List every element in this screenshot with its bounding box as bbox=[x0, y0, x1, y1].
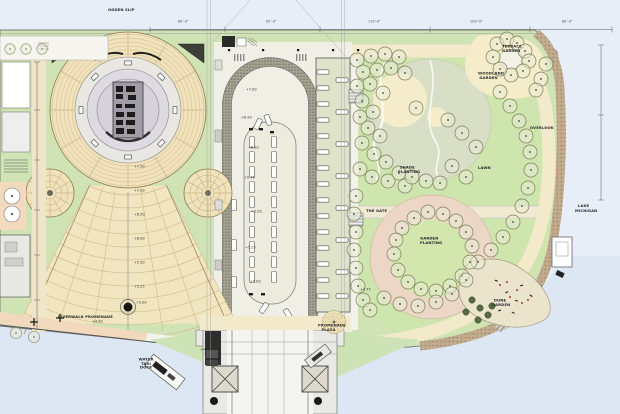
label-dune-garden: DUNE GARDEN bbox=[492, 299, 508, 307]
spot-elevation: +7.00 bbox=[134, 189, 145, 193]
site-plan-drawing bbox=[0, 0, 620, 414]
dimension-text: 80'-0" bbox=[562, 20, 573, 24]
spot-elevation: +4.75 bbox=[360, 288, 371, 292]
central-pavilion bbox=[113, 82, 143, 138]
label-terrace-garden: TERRACE GARDEN bbox=[502, 45, 521, 53]
spot-elevation: +5.00 bbox=[250, 280, 261, 284]
label-overlook: OVERLOOK bbox=[530, 126, 554, 130]
label-michigan: MICHIGAN bbox=[575, 209, 597, 213]
spot-elevation: +6.00 bbox=[248, 146, 259, 150]
label-riverwalk: RIVERWALK PROMENADE bbox=[58, 315, 113, 319]
spot-elevation: +4.50 bbox=[200, 348, 211, 352]
spot-elevation: +5.75 bbox=[244, 176, 255, 180]
label-garden-planting: GARDEN PLANTING bbox=[420, 237, 439, 245]
spot-elevation: +6.50 bbox=[241, 116, 252, 120]
label-promenade-plaza: PROMENADE PLAZA bbox=[318, 324, 339, 332]
spot-elevation: +7.00 bbox=[246, 88, 257, 92]
dimension-text: 60'-0" bbox=[178, 20, 189, 24]
side-rosette-plaza bbox=[184, 169, 232, 217]
focal-point bbox=[124, 303, 133, 312]
label-water-taxi: WATER TAXI DOCK bbox=[138, 358, 154, 370]
spot-elevation: +7.50 bbox=[134, 165, 145, 169]
mooring-dolphin bbox=[314, 397, 322, 405]
label-the-gate: THE GATE bbox=[366, 209, 387, 213]
spot-elevation: +5.50 bbox=[251, 210, 262, 214]
spot-elevation: +5.25 bbox=[245, 246, 256, 250]
label-woodland-garden: WOODLAND GARDEN bbox=[478, 72, 499, 80]
label-shade-planting: SHADE PLANTING bbox=[398, 166, 417, 174]
label-lawn: LAWN bbox=[478, 166, 491, 170]
dimension-text: 100'-0" bbox=[470, 20, 483, 24]
label-ogden-slip: OGDEN SLIP bbox=[108, 8, 135, 12]
dimension-text: 110'-0" bbox=[368, 20, 381, 24]
mooring-dolphin bbox=[210, 397, 218, 405]
spot-elevation: +6.50 bbox=[134, 213, 145, 217]
site-plan-sheet: OGDEN SLIP LAKE MICHIGAN LAWN SHADE PLAN… bbox=[0, 0, 620, 414]
label-lake: LAKE bbox=[578, 204, 589, 208]
spot-elevation: +6.00 bbox=[134, 237, 145, 241]
spot-elevation: +4.50 bbox=[92, 320, 103, 324]
spot-elevation: +5.00 bbox=[136, 301, 147, 305]
dimension-text: 85'-0" bbox=[266, 20, 277, 24]
spot-elevation: +5.50 bbox=[134, 261, 145, 265]
transit-loop bbox=[214, 36, 363, 339]
spot-elevation: +5.25 bbox=[134, 285, 145, 289]
